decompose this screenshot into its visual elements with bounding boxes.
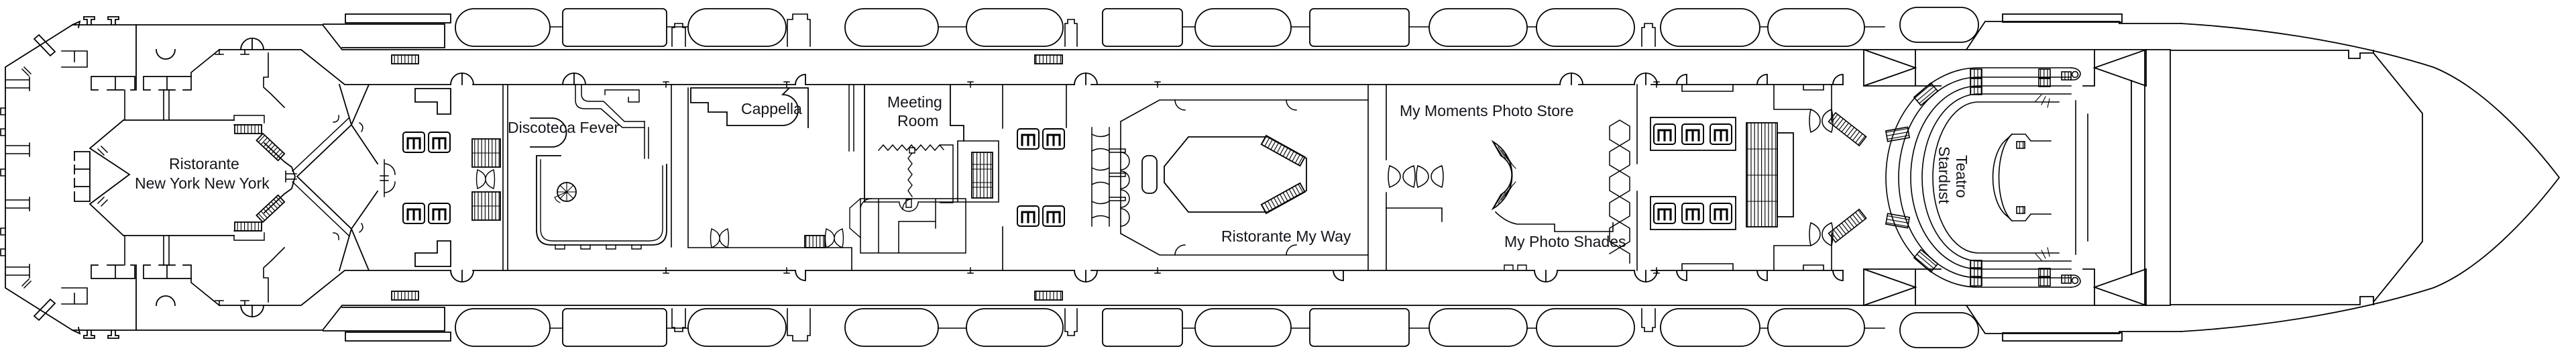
- svg-text:My Photo Shades: My Photo Shades: [1504, 233, 1626, 250]
- svg-text:New York New York: New York New York: [135, 174, 270, 192]
- svg-text:Stardust: Stardust: [1936, 146, 1953, 204]
- svg-text:Ristorante: Ristorante: [169, 155, 239, 172]
- svg-text:Ristorante My Way: Ristorante My Way: [1221, 227, 1351, 245]
- svg-text:Teatro: Teatro: [1953, 155, 1970, 198]
- svg-text:Room: Room: [897, 112, 938, 130]
- svg-text:My Moments Photo Store: My Moments Photo Store: [1400, 102, 1574, 119]
- svg-text:Cappella: Cappella: [741, 100, 802, 117]
- svg-text:Meeting: Meeting: [887, 93, 942, 111]
- svg-text:Discoteca Fever: Discoteca Fever: [508, 119, 620, 136]
